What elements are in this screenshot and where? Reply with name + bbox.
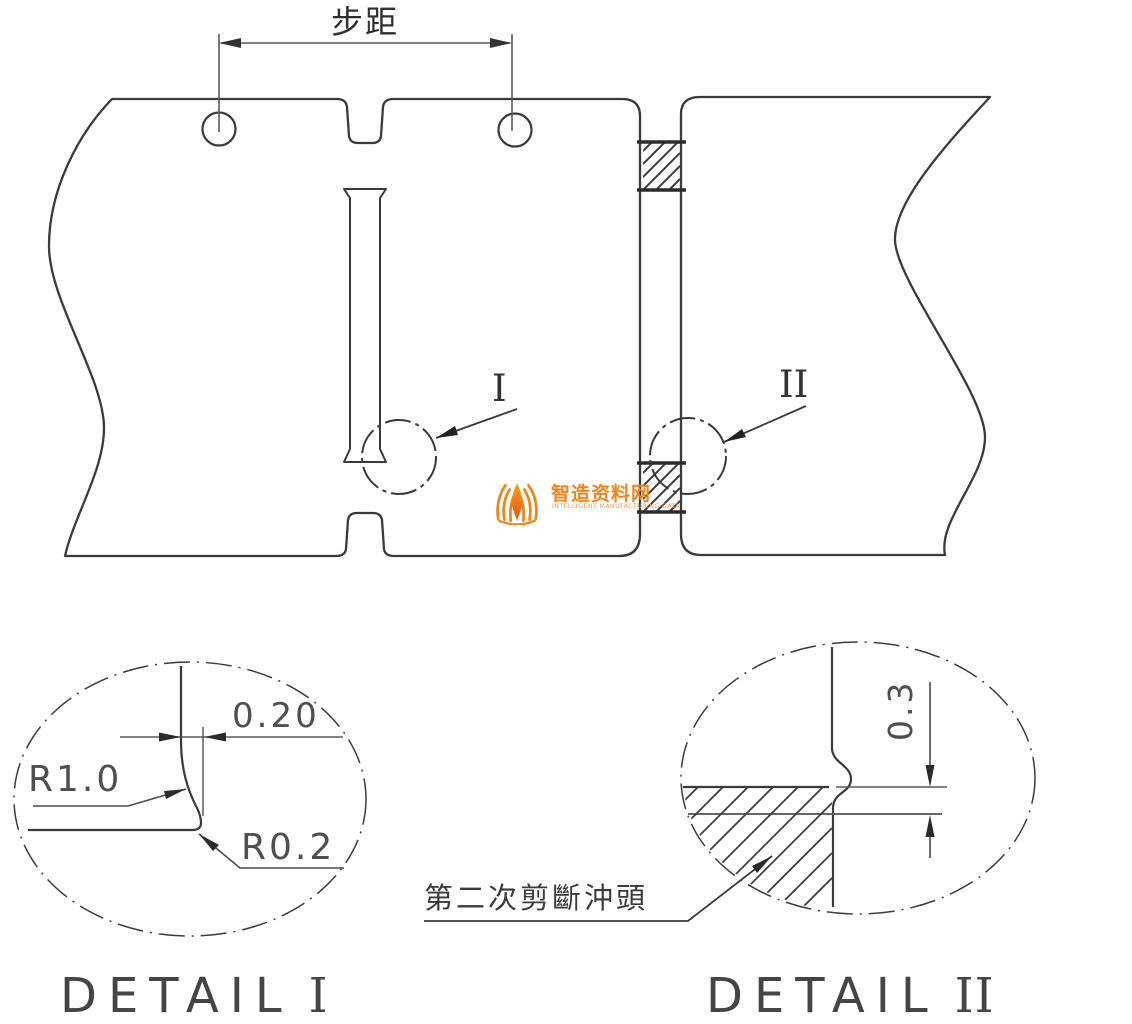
detail-1-dim-radius-large: R1.0 (28, 762, 122, 798)
pilot-hole-right (499, 114, 532, 147)
pitch-dimension-label: 步距 (331, 6, 399, 38)
strip-right-piece (681, 97, 990, 555)
detail-1-title-numeral: I (309, 968, 329, 1024)
watermark-name: 智造资料网 (551, 479, 651, 506)
pitch-dimension (219, 34, 512, 132)
detail-1-title-word: DETAIL (60, 968, 293, 1024)
detail-2-title-numeral: II (955, 968, 995, 1024)
cut-section-top (637, 114, 686, 229)
detail-2-dim-depth: 0.3 (884, 680, 917, 741)
detail-2-profile (832, 647, 851, 907)
detail-1-title: DETAIL I (60, 968, 329, 1024)
detail-marker-2: II (779, 366, 808, 403)
detail-1-dim-radius-small: R0.2 (241, 830, 335, 866)
watermark: 智造资料网 INTELLIGENT MANUFACTURING DATA (494, 476, 704, 524)
pilot-holes (203, 113, 532, 147)
slot-cutout (344, 189, 386, 462)
detail-1-dim-gap: 0.20 (232, 699, 320, 733)
watermark-tagline: INTELLIGENT MANUFACTURING DATA (552, 503, 680, 510)
detail-2-view (424, 642, 1035, 921)
detail-2-title-word: DETAIL (706, 968, 939, 1024)
watermark-logo-icon (494, 477, 540, 525)
detail-2-title: DETAIL II (706, 968, 995, 1024)
punch-callout-label: 第二次剪斷沖頭 (424, 884, 648, 913)
detail-marker-1: I (492, 370, 507, 407)
technical-drawing-page: 步距 I II 0.20 R1.0 R0.2 0.3 第二次剪斷沖頭 DETAI… (0, 0, 1132, 1010)
